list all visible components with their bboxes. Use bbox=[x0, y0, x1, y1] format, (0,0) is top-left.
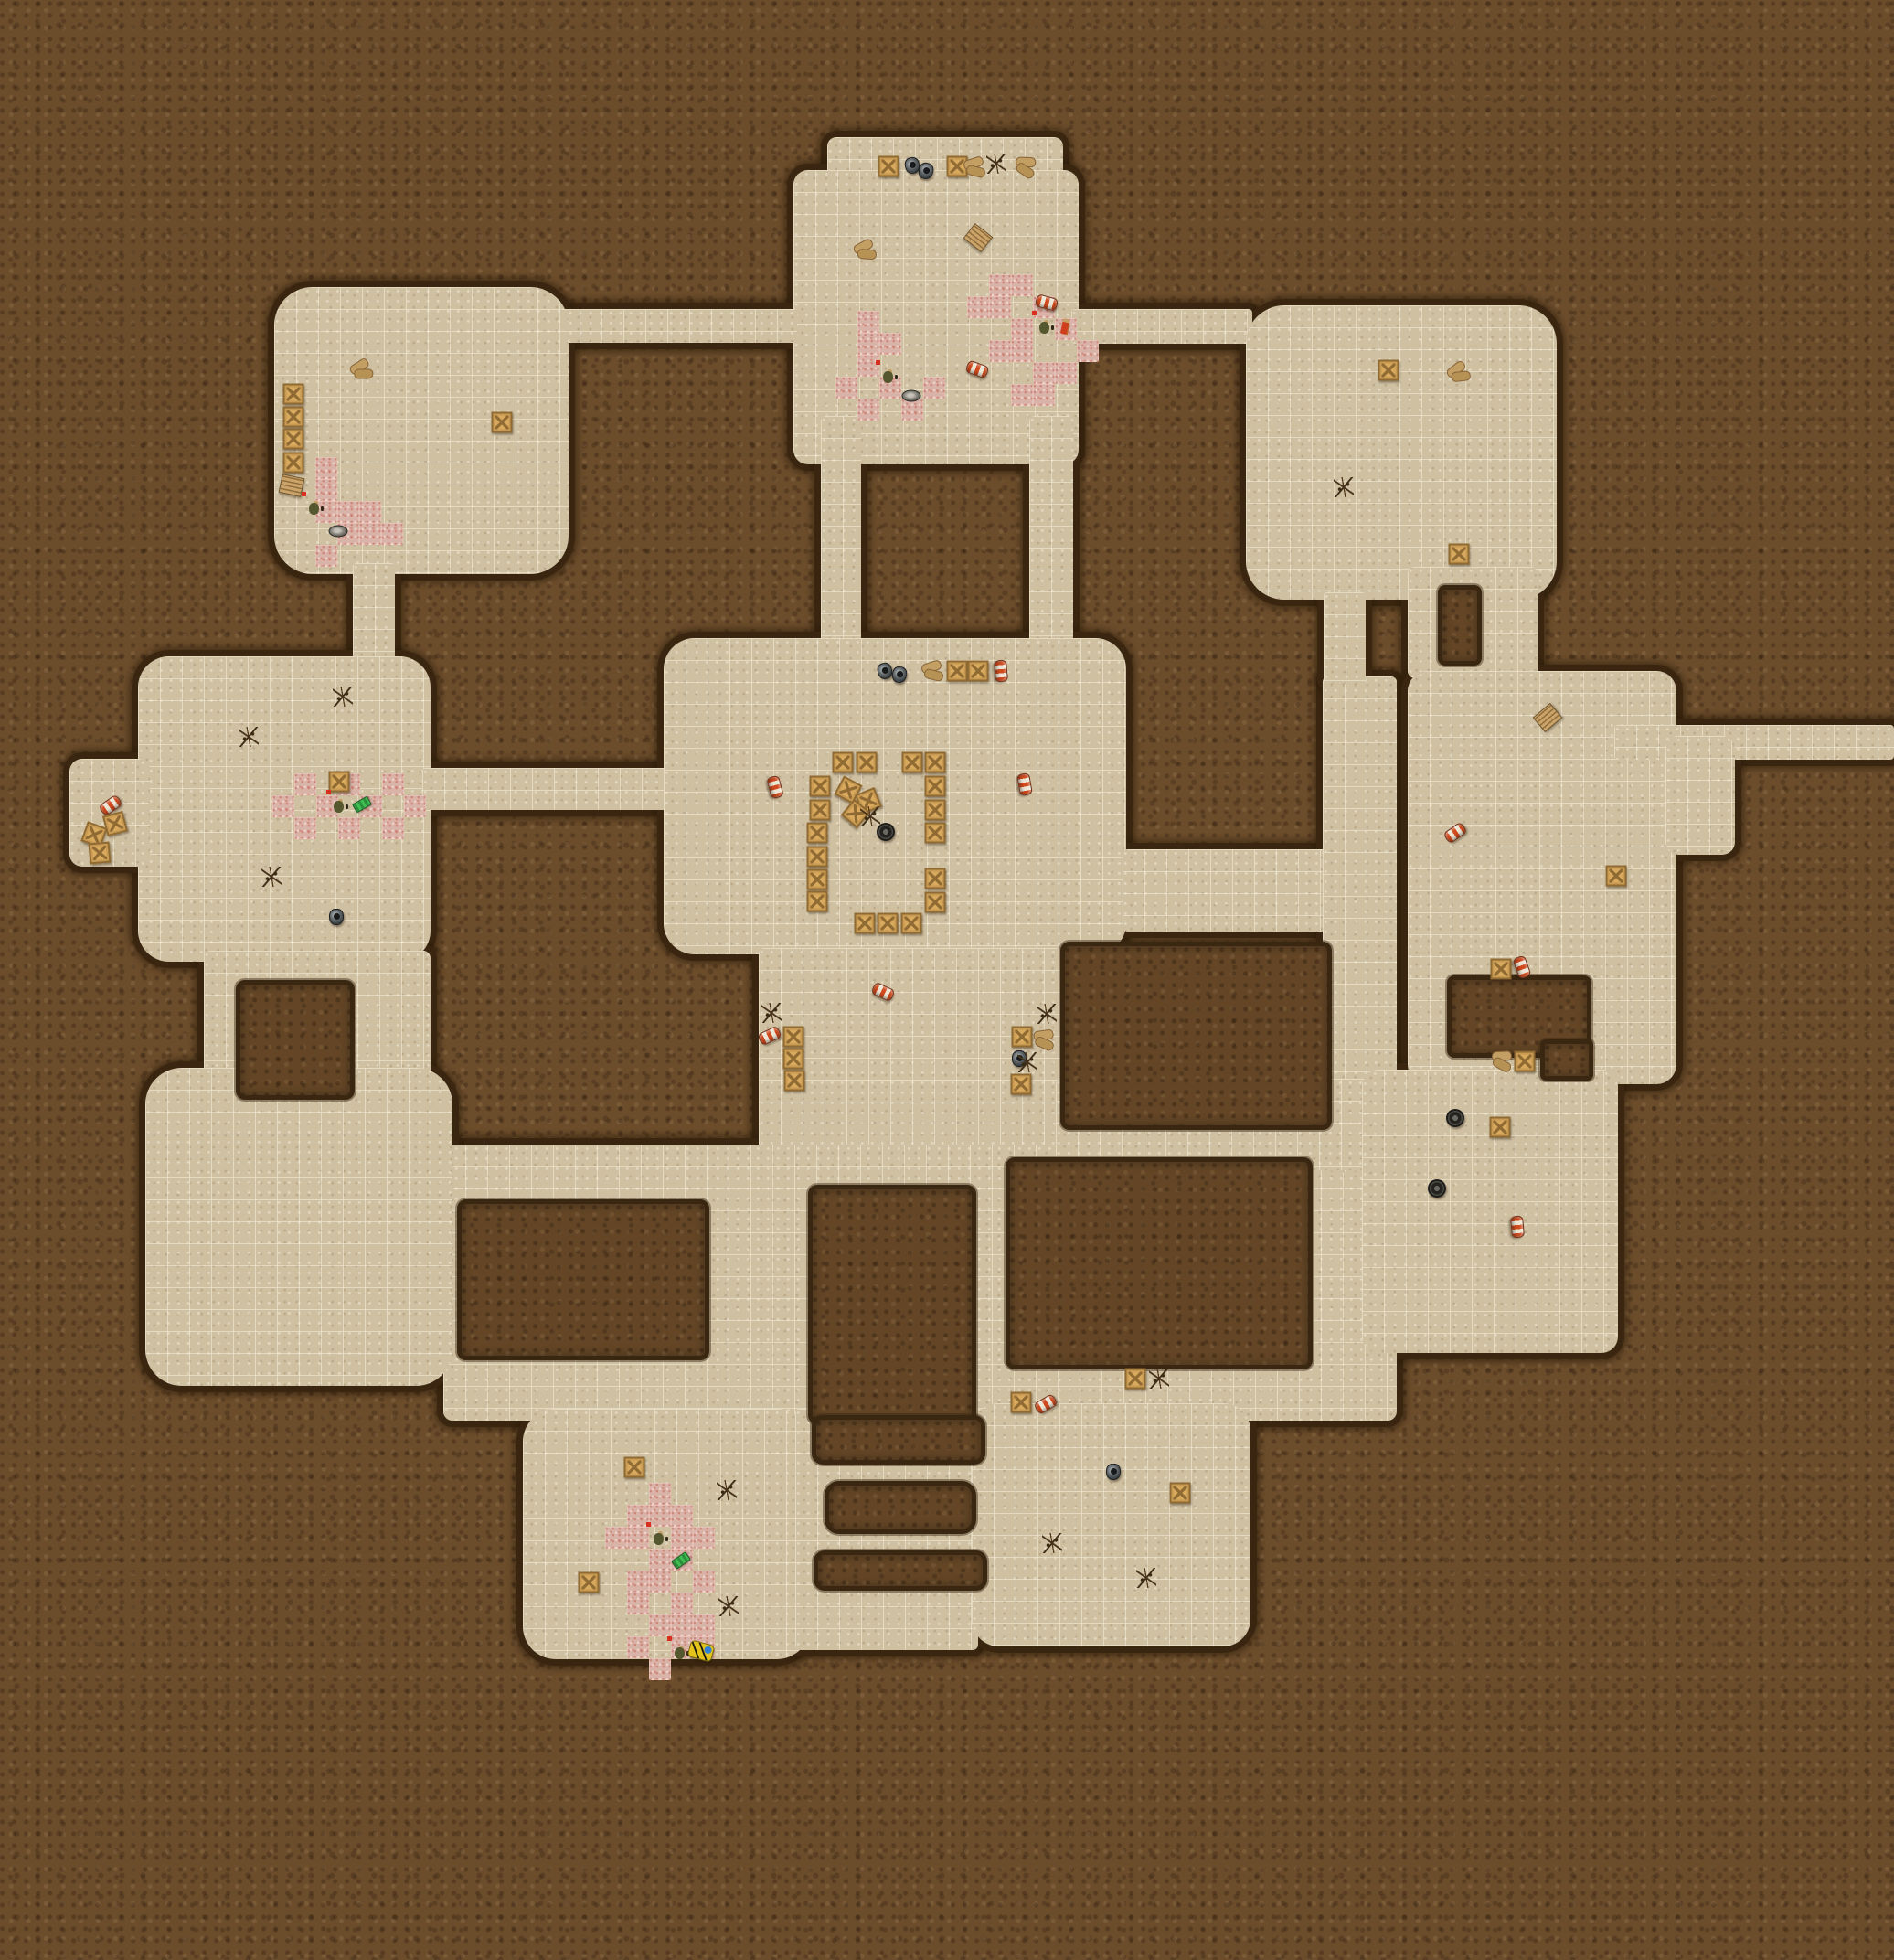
pink-tile bbox=[627, 1592, 649, 1614]
sandbags bbox=[920, 660, 944, 680]
wooden-crate bbox=[833, 752, 854, 773]
wooden-crate bbox=[492, 412, 513, 433]
pink-tile bbox=[649, 1483, 671, 1505]
floor-corr-tl-down bbox=[353, 563, 395, 666]
pink-tile bbox=[989, 296, 1011, 318]
wooden-crate bbox=[810, 800, 831, 821]
floor-mr-lower bbox=[1362, 1070, 1618, 1353]
wall-hole-e bbox=[1060, 942, 1332, 1130]
debris bbox=[333, 687, 353, 707]
pink-tile bbox=[901, 399, 923, 421]
floor-room-center bbox=[664, 638, 1126, 954]
soldier-unit[interactable] bbox=[651, 1527, 667, 1547]
soldier-unit[interactable] bbox=[331, 794, 347, 815]
debris bbox=[986, 154, 1006, 174]
debris bbox=[1042, 1533, 1062, 1553]
pink-tile bbox=[857, 355, 879, 377]
pink-tile bbox=[1011, 318, 1033, 340]
debris bbox=[1017, 1052, 1037, 1072]
pink-tile bbox=[857, 399, 879, 421]
wall-hole-tr-small bbox=[1438, 585, 1482, 666]
pink-tile bbox=[294, 773, 316, 795]
wooden-crate bbox=[283, 429, 304, 450]
wooden-crate bbox=[89, 842, 112, 865]
wall-hole-bl-ring bbox=[236, 980, 355, 1100]
pink-tile bbox=[294, 817, 316, 839]
pink-tile bbox=[693, 1571, 715, 1592]
floor-bump-mr-right bbox=[1665, 736, 1735, 855]
pink-tile bbox=[1055, 362, 1077, 384]
debris bbox=[261, 867, 282, 887]
floor-room-bl bbox=[145, 1068, 452, 1386]
debris bbox=[860, 806, 880, 826]
floor-corr-tl-tc bbox=[558, 309, 797, 343]
pink-tile bbox=[857, 333, 879, 355]
pink-tile bbox=[649, 1571, 671, 1592]
debris bbox=[1149, 1369, 1169, 1389]
debris bbox=[1334, 477, 1354, 497]
wooden-crate bbox=[283, 384, 304, 405]
soldier-unit[interactable] bbox=[672, 1641, 688, 1661]
soldier-unit[interactable] bbox=[1037, 315, 1053, 336]
wooden-crate bbox=[784, 1071, 805, 1092]
sandbags bbox=[1030, 1027, 1057, 1050]
wooden-crate bbox=[579, 1572, 600, 1593]
wooden-crate bbox=[901, 913, 922, 934]
floor-room-tr bbox=[1246, 305, 1557, 600]
pink-tile bbox=[671, 1505, 693, 1527]
pink-tile bbox=[1011, 384, 1033, 406]
debris bbox=[718, 1596, 739, 1616]
wooden-crate bbox=[878, 156, 899, 177]
sandbags bbox=[851, 238, 878, 261]
floor-corr-right-exit bbox=[1614, 725, 1894, 760]
wooden-crate bbox=[283, 407, 304, 428]
floor-corr-tc-tr bbox=[1071, 309, 1252, 344]
wooden-crate bbox=[807, 891, 828, 912]
floor-top-arm-left bbox=[821, 416, 861, 652]
debris bbox=[717, 1480, 737, 1500]
soldier-unit[interactable] bbox=[880, 365, 897, 385]
striped-barrel bbox=[994, 659, 1008, 682]
wooden-crate bbox=[878, 913, 899, 934]
wooden-crate bbox=[1606, 866, 1627, 887]
wooden-crate bbox=[1490, 1117, 1511, 1138]
pink-tile bbox=[671, 1592, 693, 1614]
wooden-crate bbox=[902, 752, 923, 773]
wooden-crate bbox=[1378, 360, 1399, 381]
pink-tile bbox=[315, 457, 337, 479]
wooden-crate bbox=[807, 869, 828, 890]
wooden-crate bbox=[968, 661, 989, 682]
wooden-crate bbox=[925, 752, 946, 773]
pink-tile bbox=[693, 1614, 715, 1636]
wooden-crate bbox=[947, 661, 968, 682]
pink-tile bbox=[381, 523, 403, 545]
wall-hole-z2 bbox=[1540, 1039, 1593, 1081]
pink-tile bbox=[671, 1614, 693, 1636]
floor-corr-ml-c bbox=[422, 768, 673, 810]
pink-tile bbox=[1011, 274, 1033, 296]
pink-tile bbox=[382, 773, 404, 795]
debris bbox=[1037, 1004, 1057, 1024]
pink-tile bbox=[315, 545, 337, 567]
wall-bridge-bar-1 bbox=[812, 1415, 985, 1465]
pink-tile bbox=[693, 1527, 715, 1549]
pink-tile bbox=[272, 795, 294, 817]
wooden-crate bbox=[807, 847, 828, 868]
wooden-crate bbox=[857, 752, 878, 773]
pink-tile bbox=[337, 501, 359, 523]
debris bbox=[761, 1003, 782, 1023]
pink-tile bbox=[1033, 384, 1055, 406]
pink-tile bbox=[1077, 340, 1099, 362]
pink-tile bbox=[649, 1614, 671, 1636]
wooden-crate bbox=[810, 776, 831, 797]
wooden-crate bbox=[783, 1049, 804, 1070]
pink-tile bbox=[989, 340, 1011, 362]
pink-tile bbox=[649, 1505, 671, 1527]
wooden-crate bbox=[624, 1457, 645, 1478]
wooden-crate bbox=[807, 823, 828, 844]
wooden-crate bbox=[855, 913, 876, 934]
pink-tile bbox=[835, 377, 857, 399]
wooden-crate bbox=[329, 772, 350, 793]
tire bbox=[877, 823, 895, 841]
pink-tile bbox=[382, 817, 404, 839]
wooden-crate bbox=[783, 1027, 804, 1048]
pink-tile bbox=[627, 1571, 649, 1592]
wall-hole-se bbox=[1006, 1157, 1313, 1369]
wooden-crate bbox=[1011, 1392, 1032, 1413]
pink-tile bbox=[359, 523, 381, 545]
wooden-crate bbox=[1011, 1074, 1032, 1095]
gray-helmet bbox=[902, 390, 921, 402]
wooden-crate bbox=[1125, 1369, 1146, 1390]
wooden-crate bbox=[1491, 959, 1512, 980]
pink-tile bbox=[671, 1527, 693, 1549]
pink-tile bbox=[989, 274, 1011, 296]
pink-tile bbox=[967, 296, 989, 318]
debris bbox=[239, 727, 259, 747]
pink-tile bbox=[1033, 362, 1055, 384]
pink-tile bbox=[627, 1636, 649, 1658]
floor-corr-tr-down bbox=[1324, 592, 1366, 684]
wall-bridge-bar-2 bbox=[825, 1481, 976, 1534]
wall-hole-sw bbox=[457, 1199, 709, 1360]
gray-helmet bbox=[329, 526, 348, 538]
floor-room-tl bbox=[274, 287, 569, 574]
pink-tile bbox=[1011, 340, 1033, 362]
wooden-crate bbox=[925, 776, 946, 797]
pink-tile bbox=[605, 1527, 627, 1549]
wooden-crate bbox=[283, 453, 304, 474]
debris bbox=[1136, 1568, 1156, 1588]
wooden-crate bbox=[925, 800, 946, 821]
gray-pot bbox=[1106, 1464, 1121, 1480]
pink-tile bbox=[649, 1658, 671, 1680]
pink-tile bbox=[359, 501, 381, 523]
wooden-crate bbox=[925, 823, 946, 844]
wooden-crate bbox=[1449, 544, 1470, 565]
wall-hole-s bbox=[808, 1185, 976, 1424]
wooden-crate bbox=[925, 868, 946, 889]
pink-tile bbox=[649, 1549, 671, 1571]
tire bbox=[1446, 1109, 1464, 1127]
pink-tile bbox=[338, 817, 360, 839]
tire bbox=[1428, 1179, 1446, 1198]
floor-room-br bbox=[972, 1403, 1250, 1646]
wooden-crate bbox=[1170, 1483, 1191, 1504]
sandbags bbox=[963, 156, 986, 176]
floor-top-arm-right bbox=[1029, 416, 1073, 652]
pink-tile bbox=[879, 333, 901, 355]
gray-pot bbox=[329, 909, 344, 925]
pink-tile bbox=[404, 795, 426, 817]
wall-bridge-bar-3 bbox=[814, 1550, 987, 1591]
game-map bbox=[0, 0, 1894, 1960]
wooden-crate bbox=[1515, 1051, 1536, 1072]
pink-tile bbox=[857, 311, 879, 333]
soldier-unit[interactable] bbox=[306, 496, 323, 517]
wooden-crate bbox=[925, 892, 946, 913]
pink-tile bbox=[627, 1527, 649, 1549]
pink-tile bbox=[923, 377, 945, 399]
striped-barrel bbox=[1510, 1215, 1525, 1238]
wooden-crate bbox=[1012, 1027, 1033, 1048]
